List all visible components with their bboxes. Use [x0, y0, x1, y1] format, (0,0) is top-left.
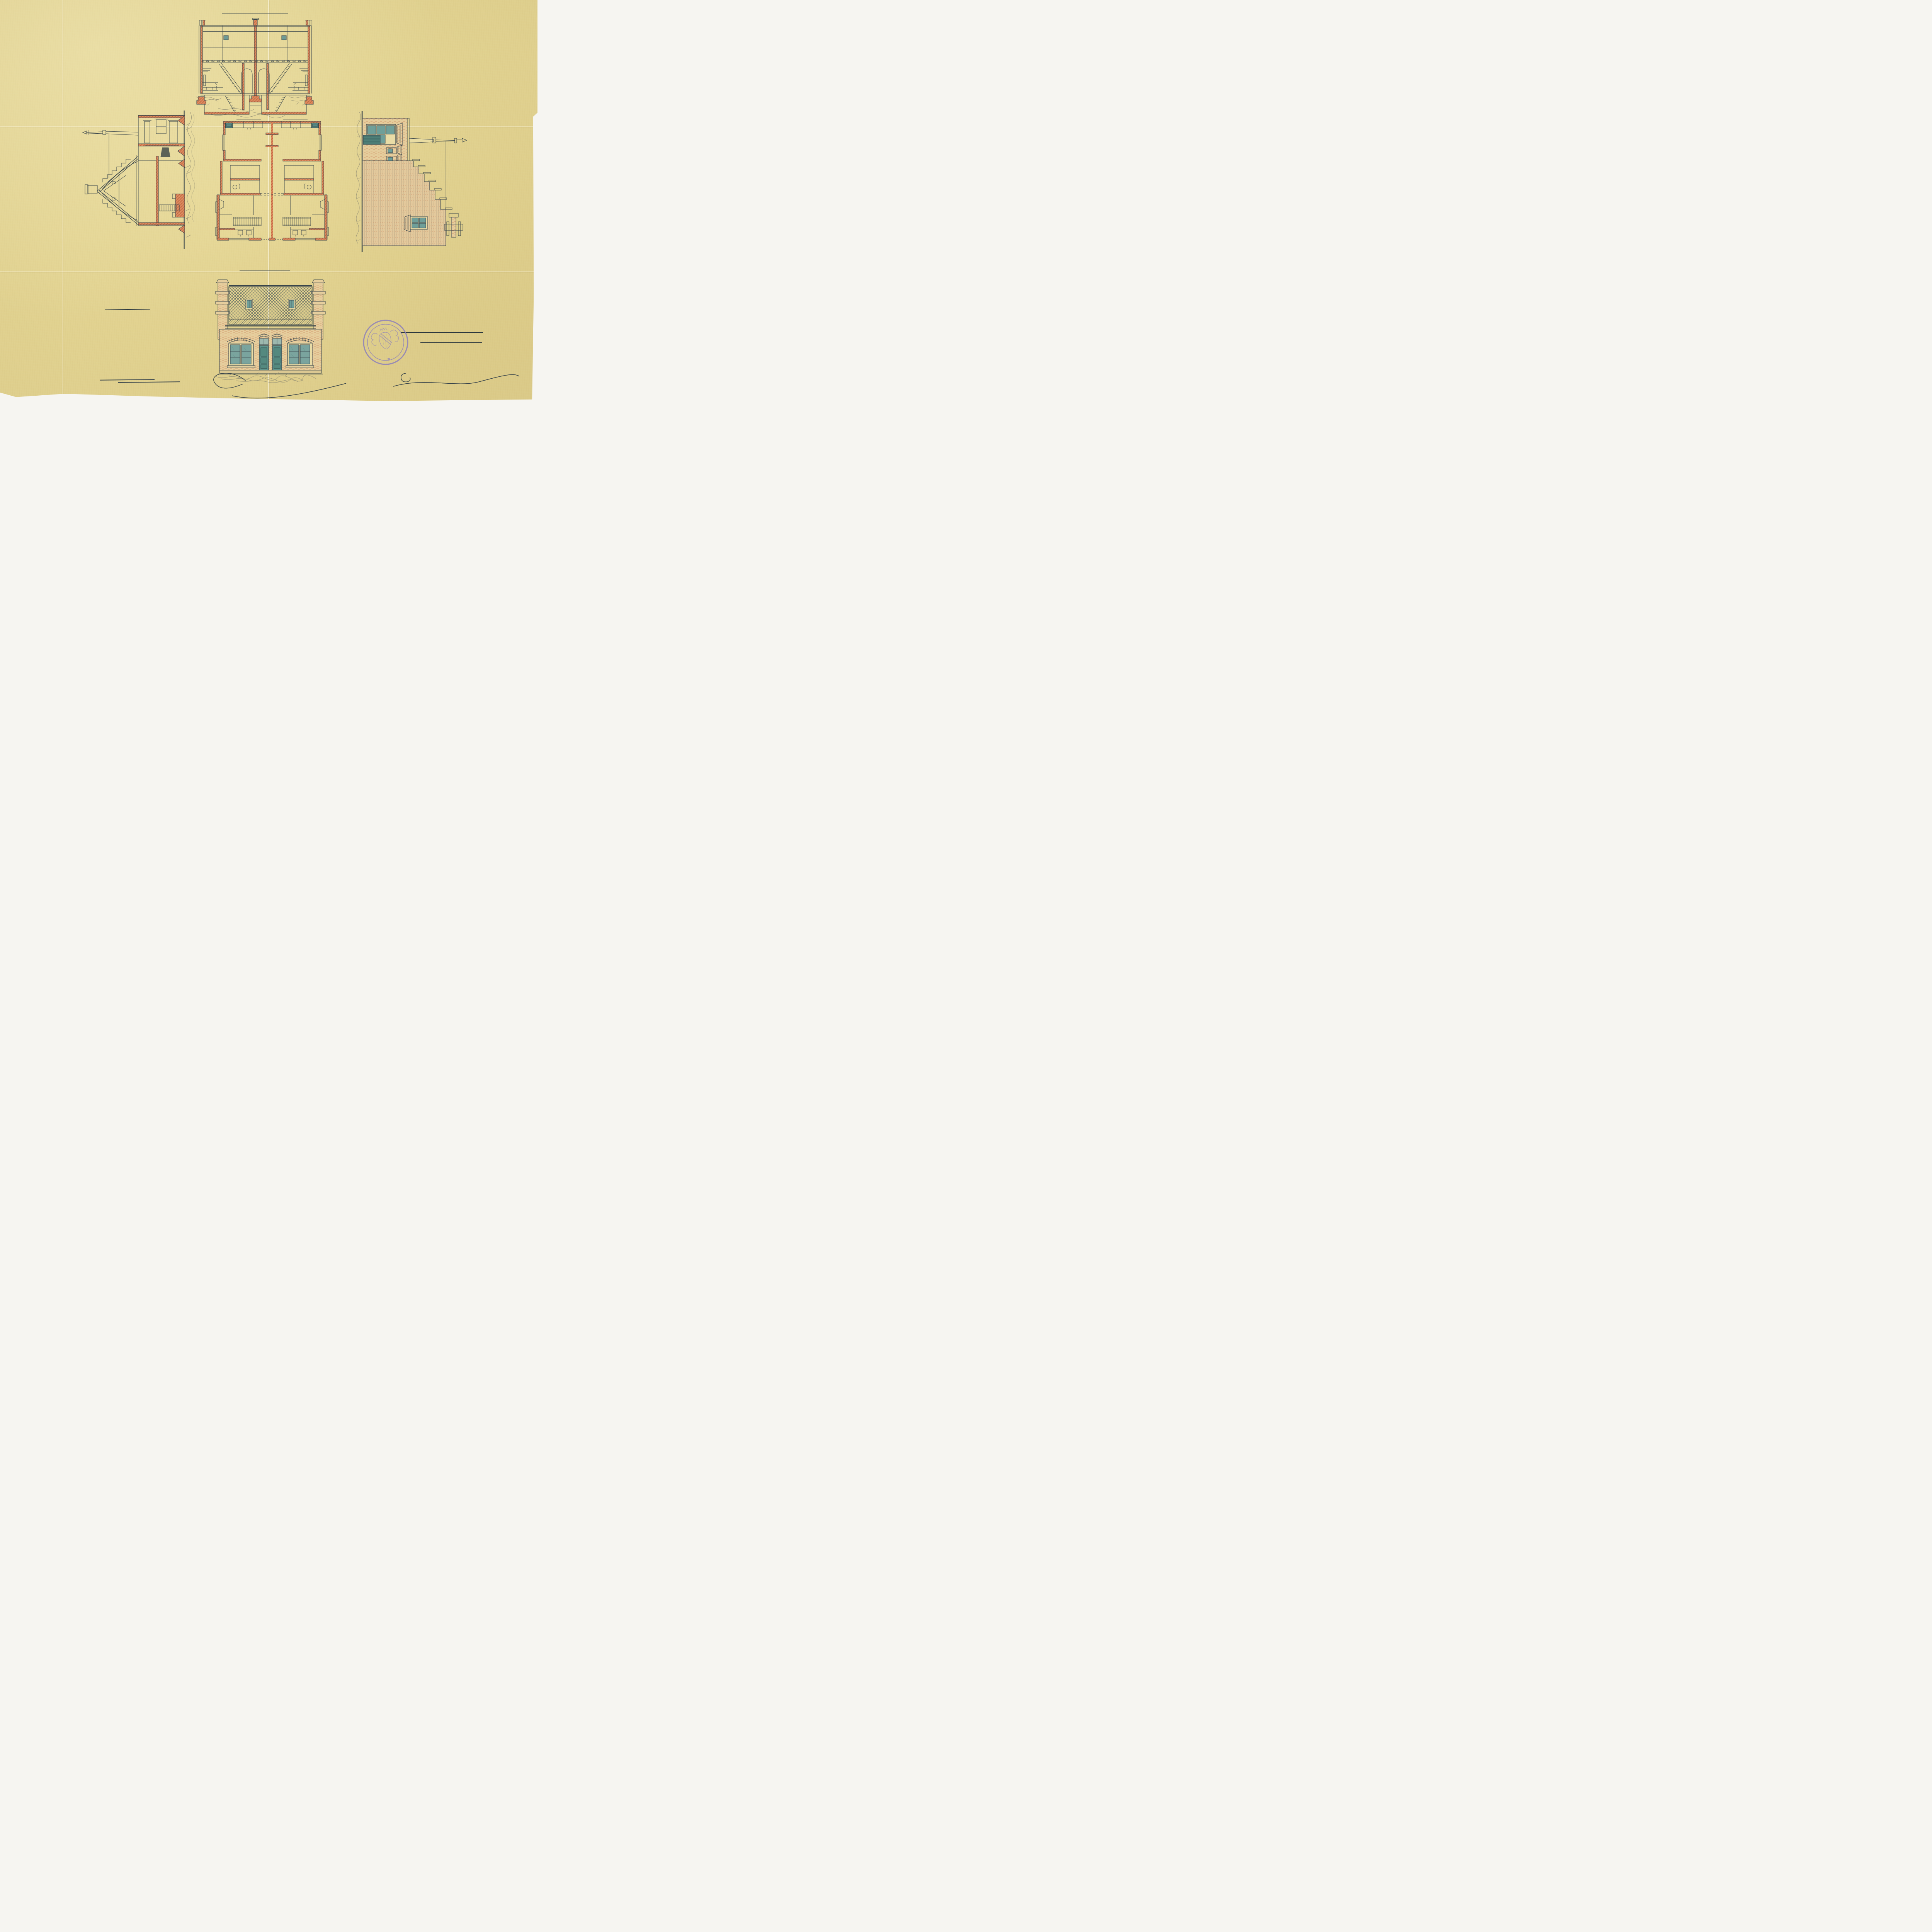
fold-crease-horizontal-lower	[0, 271, 537, 272]
legend-heading-underline	[105, 309, 150, 310]
fold-crease-vertical-left	[62, 0, 63, 402]
stamp-star-icon: ✻	[387, 357, 391, 362]
longitudinal-section-drawing	[195, 17, 316, 118]
municipal-stamp: ✻	[358, 315, 413, 370]
plan-structure	[216, 120, 328, 240]
titleblock-line3-underline-2	[403, 334, 481, 334]
legend-bottom-line-2	[118, 381, 180, 383]
legend-bottom-line-1	[100, 379, 155, 380]
floor-plan-drawing	[213, 117, 331, 246]
floor-plan	[213, 117, 332, 247]
titleblock-line3-underline	[401, 332, 483, 333]
facade-structure	[216, 280, 325, 374]
number-flourish	[390, 366, 522, 389]
section-structure	[83, 111, 185, 249]
label-longitudinal-section	[222, 13, 288, 14]
section-structure	[197, 18, 313, 114]
drawing-sheet: ✻	[0, 0, 537, 402]
side-elevation-drawing	[356, 110, 467, 253]
stamp-coat-of-arms	[369, 325, 400, 351]
ground-hatching	[185, 112, 195, 237]
signature-flourish	[209, 367, 355, 401]
elevation-structure	[361, 111, 467, 252]
titleblock-scale	[420, 342, 482, 343]
label-front-facade	[240, 269, 290, 270]
cross-section-drawing	[80, 110, 200, 251]
ground-hatching	[356, 112, 361, 243]
